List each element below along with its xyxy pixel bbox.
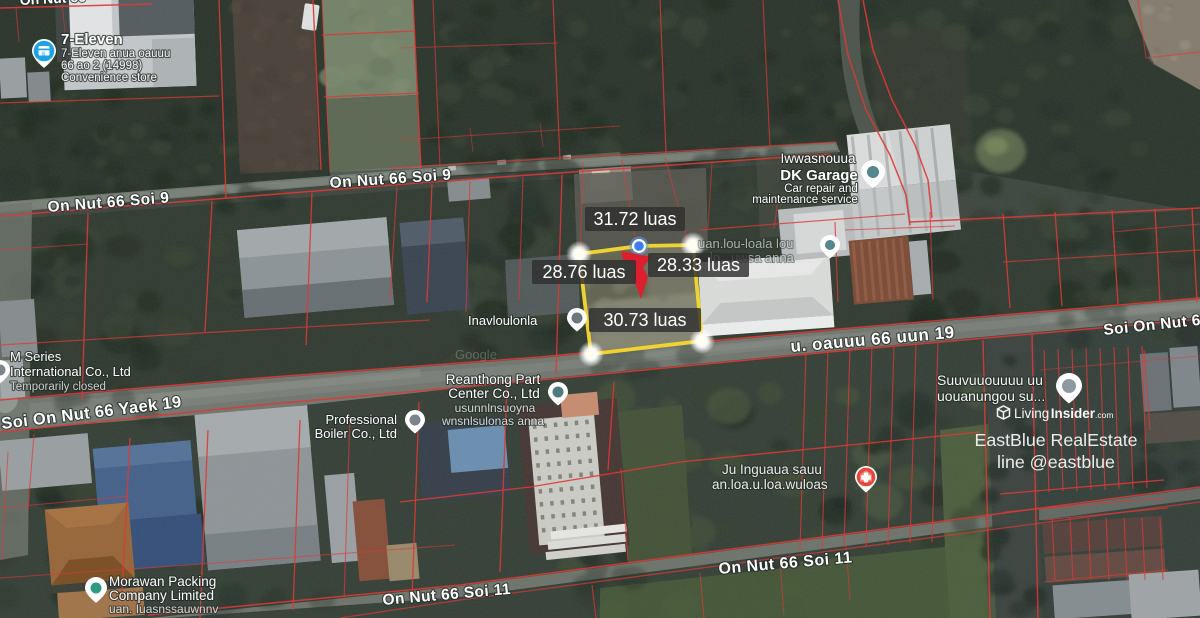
svg-text:Boiler Co., Ltd: Boiler Co., Ltd: [315, 426, 397, 441]
svg-text:M Series: M Series: [10, 349, 62, 364]
svg-text:Ju Inguaua sauu: Ju Inguaua sauu: [722, 462, 822, 477]
svg-text:wnsnlsulonas anna: wnsnlsulonas anna: [441, 414, 544, 428]
svg-text:31.72 luas: 31.72 luas: [593, 209, 676, 229]
svg-text:EastBlue RealEstate: EastBlue RealEstate: [974, 430, 1137, 450]
svg-text:7-Eleven anua oauuu: 7-Eleven anua oauuu: [61, 48, 170, 60]
svg-text:usunnlnsuoyna: usunnlnsuoyna: [455, 401, 536, 415]
svg-text:maintenance service: maintenance service: [752, 194, 857, 206]
svg-text:Center Co., Ltd: Center Co., Ltd: [448, 386, 540, 401]
svg-text:International Co., Ltd: International Co., Ltd: [10, 364, 131, 379]
svg-text:7-Eleven: 7-Eleven: [61, 31, 123, 48]
svg-text:line @eastblue: line @eastblue: [997, 452, 1115, 472]
svg-text:uan.lou-loala lou: uan.lou-loala lou: [698, 236, 793, 251]
svg-text:28.33 luas: 28.33 luas: [657, 255, 740, 275]
svg-text:66 ao 2 (14998): 66 ao 2 (14998): [61, 60, 142, 72]
svg-text:Iwwasnouua: Iwwasnouua: [780, 151, 856, 166]
svg-text:Reanthong Part: Reanthong Part: [446, 372, 541, 387]
svg-text:Suuvuuouuuu uu: Suuvuuouuuu uu: [937, 372, 1043, 388]
svg-text:Temporarily closed: Temporarily closed: [10, 381, 106, 393]
svg-text:Google: Google: [455, 347, 497, 362]
svg-text:Professional: Professional: [325, 412, 397, 427]
svg-text:30.73 luas: 30.73 luas: [603, 310, 686, 330]
svg-text:DK Garage: DK Garage: [780, 167, 858, 184]
svg-text:28.76 luas: 28.76 luas: [542, 262, 625, 282]
svg-text:uan. Iuasnssauwnnv: uan. Iuasnssauwnnv: [109, 602, 218, 616]
svg-text:uouanungou su...: uouanungou su...: [937, 388, 1045, 404]
svg-text:Inavloulonla: Inavloulonla: [468, 313, 538, 328]
svg-text:an.loa.u.loa.wuloas: an.loa.u.loa.wuloas: [712, 477, 828, 492]
svg-text:Morawan Packing: Morawan Packing: [109, 574, 216, 589]
svg-text:Company Limited: Company Limited: [109, 588, 214, 603]
svg-text:Convenience store: Convenience store: [61, 72, 157, 84]
